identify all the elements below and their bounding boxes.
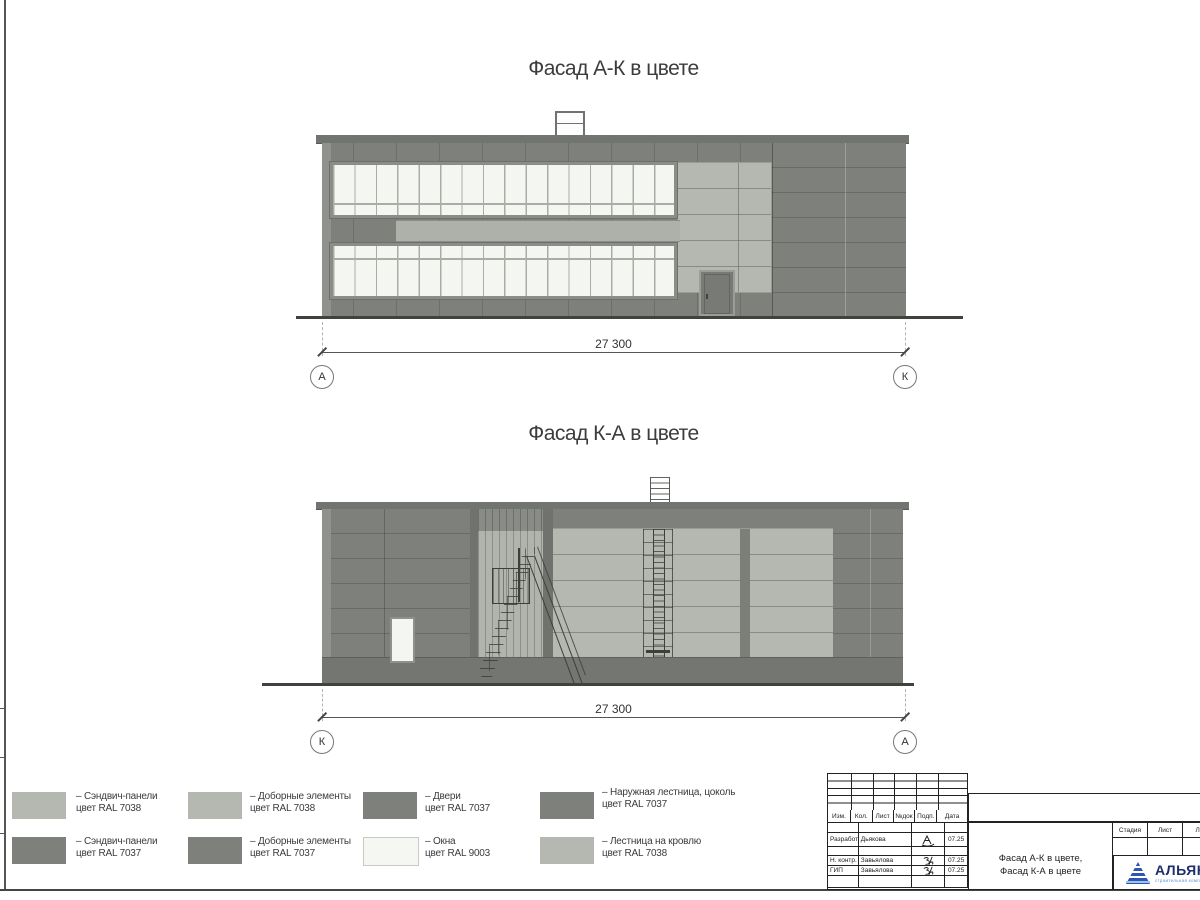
col-data: Дата: [937, 810, 968, 823]
title-block: Изм. Кол. Лист №док Подп. Дата Разработа…: [827, 773, 1200, 890]
ground-line: [262, 683, 914, 686]
legend-swatch: [188, 792, 242, 819]
window-band-lower: [329, 242, 678, 300]
frame-tick: [0, 833, 4, 834]
dimension-line: [322, 352, 905, 353]
signature: [912, 866, 945, 876]
signature-row: Разработал Дьякова 07.25: [828, 833, 968, 847]
roof-ladder-cage: [643, 529, 673, 657]
legend-swatch: [363, 792, 417, 819]
company-name: АЛЬЯНС: [1155, 862, 1200, 878]
legend-label: – Сэндвич-панелицвет RAL 7038: [76, 791, 157, 814]
axis-marker-k: К: [310, 730, 334, 754]
col-list: Лист: [873, 810, 894, 823]
col-izm: Изм.: [828, 810, 851, 823]
legend-label: – Окнацвет RAL 9003: [425, 836, 490, 859]
drawing-sheet: Фасад А-К в цвете: [0, 0, 1200, 900]
roof-ladder-rails: [653, 529, 665, 657]
name-label: Дьякова: [859, 833, 913, 847]
axis-letter: А: [901, 736, 908, 748]
date-label: 07.25: [945, 856, 968, 866]
axis-marker-a: А: [310, 365, 334, 389]
frame-tick: [0, 708, 4, 709]
change-table-header: Изм. Кол. Лист №док Подп. Дата: [827, 810, 968, 823]
ladder-platform: [646, 650, 670, 653]
name-label: Завьялова: [859, 866, 913, 876]
legend-label: – Доборные элементыцвет RAL 7037: [250, 836, 351, 859]
change-table-grid: [827, 773, 968, 810]
doc-title-cell: Фасад А-К в цвете, Фасад К-А в цвете: [968, 822, 1113, 890]
date-label: 07.25: [945, 866, 968, 876]
pilaster: [740, 529, 750, 657]
date-label: 07.25: [945, 833, 968, 847]
role-label: Н. контр.: [828, 856, 859, 866]
legend-swatch: [540, 792, 594, 819]
frame-left-line: [4, 0, 6, 890]
stage-table: Стадия Лист Листов АЛЬЯНС строительная: [1113, 822, 1200, 890]
legend-swatch: [12, 837, 66, 864]
name-label: Завьялова: [859, 856, 913, 866]
legend-swatch: [12, 792, 66, 819]
doc-title-line1: Фасад А-К в цвете,: [999, 852, 1083, 865]
company-logo-icon: [1126, 862, 1150, 884]
signature: [912, 856, 945, 866]
legend-label: – Доборные элементыцвет RAL 7038: [250, 791, 351, 814]
company-subtitle: строительная компания: [1155, 878, 1200, 883]
light-panel-region: [553, 528, 833, 657]
stage-col: Стадия: [1113, 823, 1148, 838]
dimension-value: 27 300: [322, 337, 905, 351]
legend-swatch: [363, 837, 419, 866]
dimension-value: 27 300: [322, 702, 905, 716]
legend-label: – Дверицвет RAL 7037: [425, 791, 490, 814]
axis-letter: К: [319, 736, 325, 748]
window-band-upper: [329, 161, 678, 219]
right-panel-section: [772, 143, 906, 316]
legend-label: – Наружная лестница, цокольцвет RAL 7037: [602, 787, 735, 810]
doc-title-line2: Фасад К-А в цвете: [1000, 865, 1081, 878]
roof-hatch: [555, 111, 585, 137]
role-label: ГИП: [828, 866, 859, 876]
col-podp: Подп.: [915, 810, 937, 823]
stair-mast: [518, 548, 520, 602]
window-glazing: [333, 165, 674, 215]
col-ndok: №док: [894, 810, 916, 823]
dimension-line: [322, 717, 905, 718]
signature: [912, 833, 945, 847]
axis-marker-a: А: [893, 730, 917, 754]
signature-row: ГИП Завьялова 07.25: [828, 866, 968, 876]
window-glazing: [333, 246, 674, 296]
ground-line: [296, 316, 963, 319]
light-band: [396, 220, 680, 242]
role-label: Разработал: [828, 833, 859, 847]
door-handle: [706, 294, 708, 299]
legend-label: – Лестница на кровлюцвет RAL 7038: [602, 836, 701, 859]
list-col: Лист: [1148, 823, 1183, 838]
axis-letter: А: [318, 371, 325, 383]
designation-cell: [968, 793, 1200, 822]
legend-swatch: [540, 837, 594, 864]
legend-label: – Сэндвич-панелицвет RAL 7037: [76, 836, 157, 859]
frame-tick: [0, 757, 4, 758]
stair-platform-cage: [492, 568, 530, 604]
company-cell: АЛЬЯНС строительная компания: [1113, 856, 1200, 890]
signature-row: Н. контр. Завьялова 07.25: [828, 856, 968, 866]
axis-marker-k: К: [893, 365, 917, 389]
facade-ak-title: Фасад А-К в цвете: [322, 57, 905, 87]
entrance-door: [699, 270, 735, 316]
facade-ka-title: Фасад К-А в цвете: [322, 422, 905, 452]
col-kol: Кол.: [851, 810, 873, 823]
signature-table: Разработал Дьякова 07.25 Н. контр. Завья…: [827, 823, 968, 890]
small-window: [390, 617, 415, 663]
axis-letter: К: [902, 371, 908, 383]
legend-swatch: [188, 837, 242, 864]
listov-col: Листов: [1183, 823, 1200, 838]
